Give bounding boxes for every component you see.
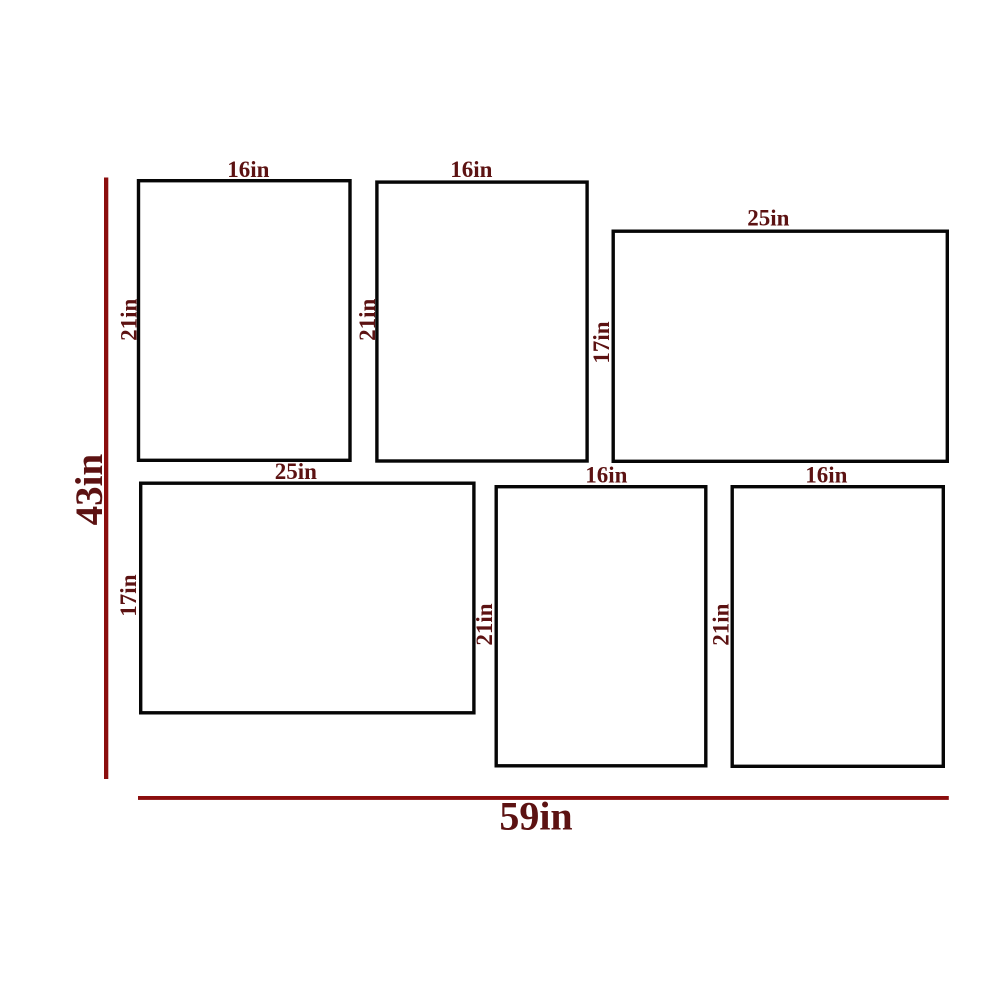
- svg-text:17in: 17in: [589, 321, 614, 363]
- svg-text:16in: 16in: [450, 157, 492, 182]
- svg-text:16in: 16in: [585, 463, 627, 488]
- svg-text:21in: 21in: [355, 299, 380, 341]
- svg-text:16in: 16in: [805, 463, 847, 488]
- svg-text:59in: 59in: [499, 794, 572, 839]
- svg-text:21in: 21in: [708, 603, 733, 645]
- svg-text:43in: 43in: [68, 454, 111, 526]
- svg-text:21in: 21in: [472, 603, 497, 645]
- svg-text:16in: 16in: [227, 157, 269, 182]
- svg-text:21in: 21in: [117, 299, 142, 341]
- svg-text:25in: 25in: [275, 459, 317, 484]
- svg-text:25in: 25in: [747, 206, 789, 231]
- svg-text:17in: 17in: [116, 574, 141, 616]
